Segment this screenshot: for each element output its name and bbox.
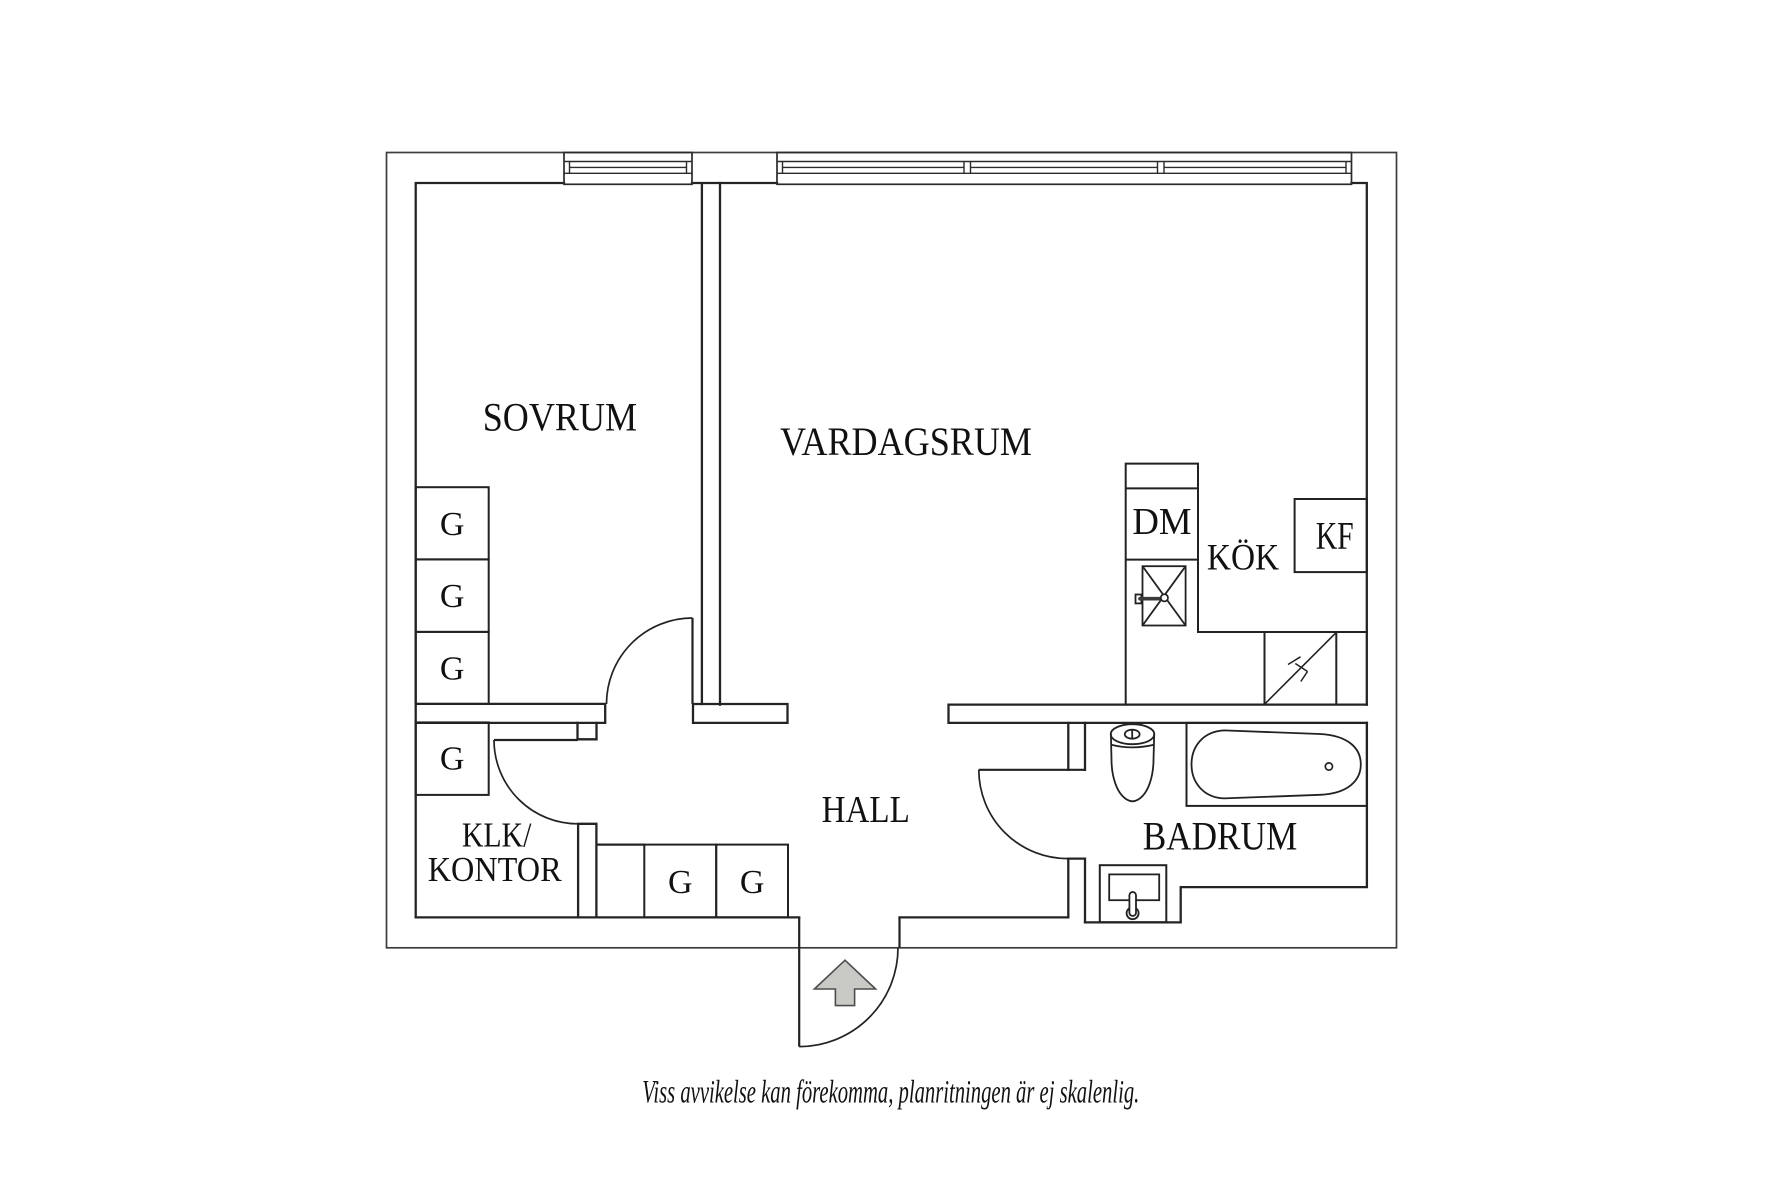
svg-text:G: G: [440, 578, 465, 615]
svg-text:G: G: [440, 650, 465, 687]
svg-text:G: G: [440, 741, 465, 778]
svg-text:KF: KF: [1316, 514, 1354, 557]
svg-text:SOVRUM: SOVRUM: [483, 395, 637, 440]
svg-text:G: G: [740, 864, 765, 901]
svg-text:G: G: [668, 864, 693, 901]
svg-text:BADRUM: BADRUM: [1143, 814, 1298, 859]
svg-text:KONTOR: KONTOR: [428, 850, 562, 889]
svg-text:DM: DM: [1132, 501, 1191, 543]
svg-text:HALL: HALL: [822, 789, 910, 831]
svg-text:KÖK: KÖK: [1207, 538, 1279, 579]
svg-text:G: G: [440, 506, 465, 543]
svg-text:Viss avvikelse kan förekomma,: Viss avvikelse kan förekomma, planritnin…: [642, 1075, 1139, 1111]
svg-text:VARDAGSRUM: VARDAGSRUM: [780, 419, 1032, 464]
